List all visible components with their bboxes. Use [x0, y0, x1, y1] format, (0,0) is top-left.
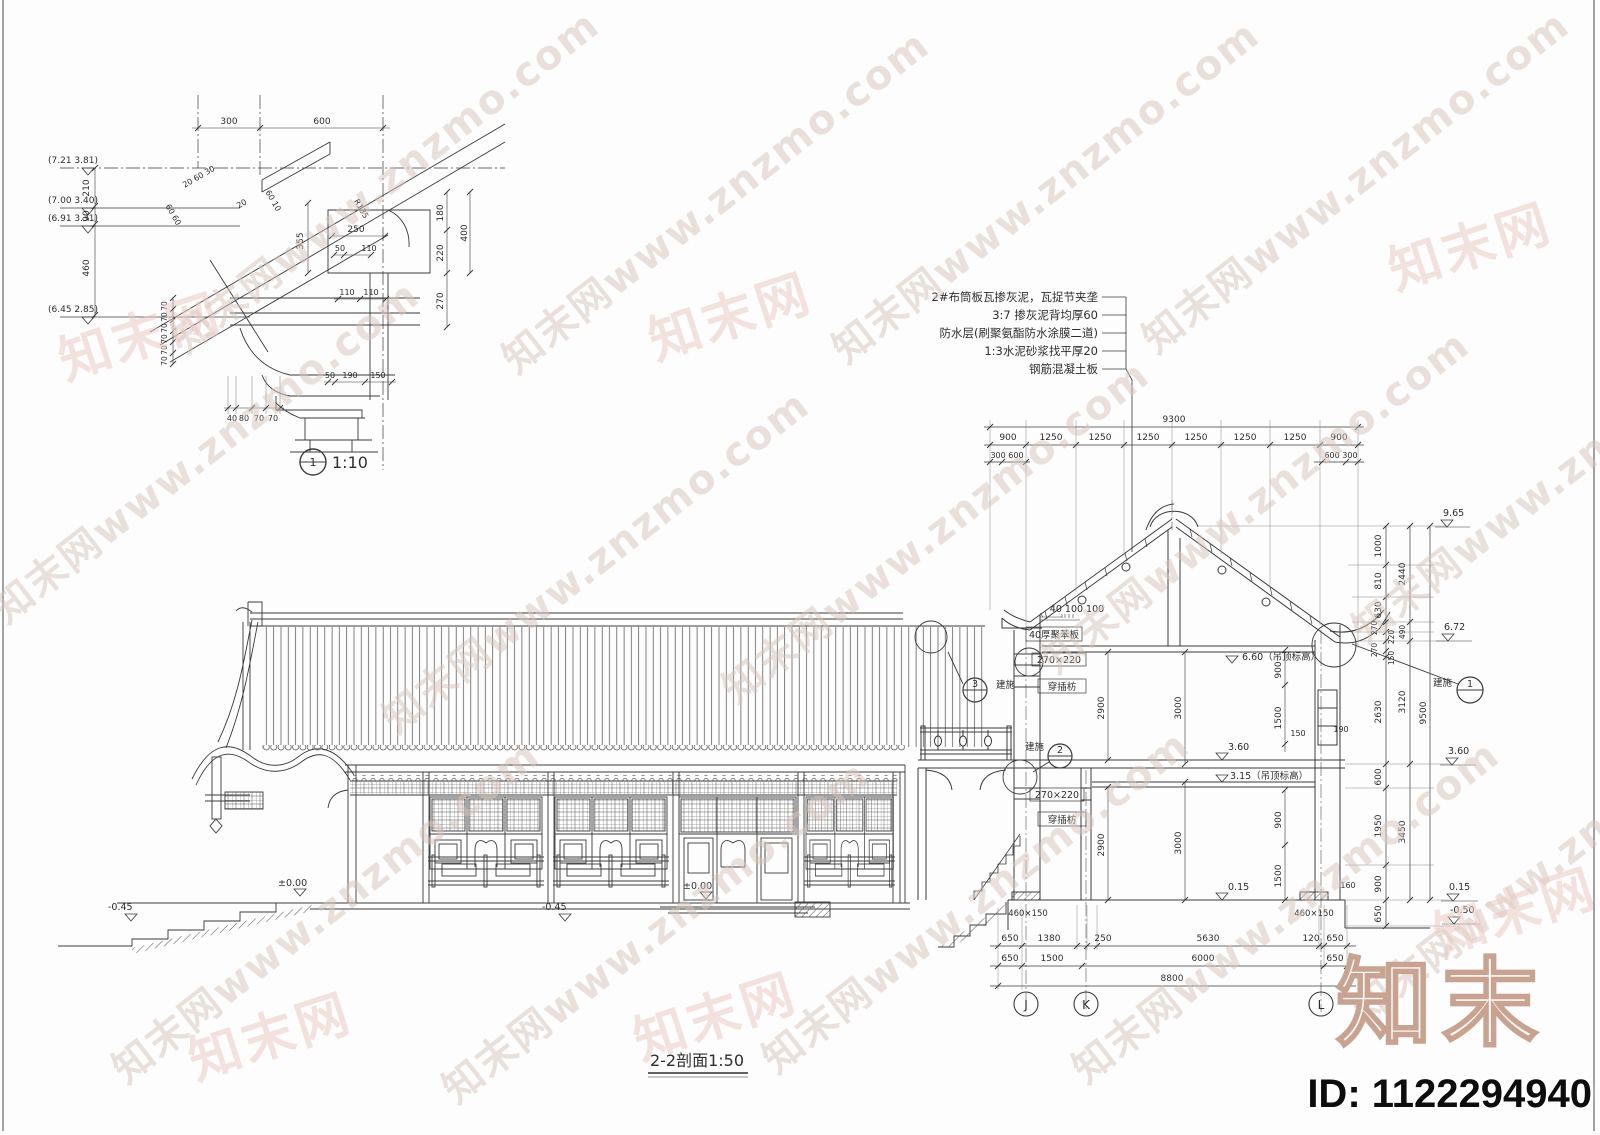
- ref-label: 建施: [1433, 677, 1453, 689]
- image-id-label: ID: 1122294940: [1307, 1072, 1592, 1117]
- dim-label: 70: [160, 345, 169, 355]
- dim-label: 5630: [1197, 934, 1220, 944]
- dim-label: 110: [361, 244, 376, 253]
- member-label: 穿插枋: [1048, 681, 1077, 693]
- level-label: (6.45 2.85): [48, 305, 98, 315]
- dim-label: 2900: [1097, 833, 1107, 856]
- member-label: 460×150: [1008, 909, 1048, 919]
- dim-label: 630: [1374, 601, 1384, 618]
- dim-label: 1250: [1234, 433, 1257, 443]
- dim-label: 150: [1290, 729, 1305, 738]
- grid-label: K: [1082, 998, 1091, 1012]
- znzmo-logo: 知末: [1336, 926, 1548, 1065]
- dim-label: 650: [1001, 934, 1018, 944]
- level-label: ±0.00: [278, 878, 307, 889]
- level-label: -0.50: [1450, 905, 1475, 916]
- dim-label: 3000: [1174, 696, 1184, 719]
- dim-label: 600: [1374, 768, 1384, 785]
- dim-label: 490: [1398, 625, 1407, 640]
- ref-number: 1: [1467, 679, 1473, 690]
- dim-label: 3120: [1398, 690, 1408, 713]
- ref-label: 建施: [996, 679, 1016, 691]
- left-building: [58, 602, 1006, 954]
- dim-label: 600 300: [1324, 451, 1357, 460]
- roof-construction-notes: 2#布筒板瓦掺灰泥，瓦捉节夹垄 3:7 掺灰泥背均厚60 防水层(刷聚氨酯防水涂…: [932, 290, 1132, 552]
- dim-label: 900: [1374, 875, 1384, 892]
- level-label: 3.60: [1448, 746, 1469, 757]
- dim-label: 60 60: [164, 203, 183, 227]
- grid-label: L: [1318, 998, 1325, 1012]
- level-label: (7.21 3.81): [48, 156, 98, 166]
- dim-label: 1250: [1185, 433, 1208, 443]
- dim-label: 1500: [1274, 864, 1284, 887]
- dim-label: 150: [370, 371, 385, 380]
- dim-label: 250: [1094, 934, 1111, 944]
- dim-label: 460: [82, 259, 92, 276]
- level-label: 9.65: [1443, 508, 1464, 519]
- cad-sheet: 知末网www.znzmo.com 知末网www.znzmo.com 知末网www…: [0, 0, 1600, 1131]
- dim-label: 80: [239, 414, 249, 423]
- dim-label: 250: [347, 225, 364, 235]
- dim-label: 8800: [1161, 974, 1184, 984]
- level-label: -0.45: [108, 902, 133, 913]
- note-leader-lines: [1102, 297, 1132, 552]
- dim-label: 6000: [1192, 954, 1215, 964]
- dim-label: 110: [363, 288, 378, 297]
- drawing-title: 2-2剖面1:50: [648, 1051, 748, 1077]
- dim-label: 270: [1370, 643, 1379, 658]
- note-line: 1:3水泥砂浆找平厚20: [984, 344, 1098, 358]
- detail-bubble-number: 1: [310, 456, 317, 469]
- dim-label: 70: [160, 356, 169, 366]
- dim-label: 1250: [1089, 433, 1112, 443]
- grid-label: J: [1023, 998, 1028, 1012]
- dim-label: 2900: [1097, 696, 1107, 719]
- dim-label: 50: [325, 371, 335, 380]
- note-line: 钢筋混凝土板: [1029, 362, 1098, 376]
- dim-label: 190: [1333, 725, 1348, 734]
- dim-label: 9300: [1163, 415, 1186, 425]
- member-label: 40厚聚苯板: [1029, 629, 1080, 641]
- dim-label: 600: [313, 117, 330, 127]
- dim-label: 1500: [1041, 954, 1064, 964]
- ref-number: 2: [1057, 745, 1063, 756]
- detail-scale-label: 1:10: [332, 453, 368, 472]
- dim-label: 70: [268, 414, 278, 423]
- member-label: 270×220: [1035, 790, 1079, 801]
- dim-label: 355: [296, 232, 306, 249]
- dim-label: 1250: [1284, 433, 1307, 443]
- door-bay: [117, 797, 815, 913]
- dim-label: 9500: [1419, 701, 1429, 724]
- grid-bubbles: J K L: [1014, 992, 1333, 1016]
- dim-label: 900: [1330, 433, 1347, 443]
- dim-label: 3000: [1174, 831, 1184, 854]
- note-line: 防水层(刷聚氨酯防水涂膜二道): [940, 326, 1098, 340]
- dim-label: 650: [1001, 954, 1018, 964]
- dim-label: 1250: [1137, 433, 1160, 443]
- right-building-section: [58, 500, 1430, 1012]
- ref-number: 3: [972, 679, 978, 690]
- dim-label: 900: [1274, 661, 1284, 678]
- dim-label: 270: [436, 292, 446, 309]
- dim-label: 120: [1302, 934, 1319, 944]
- dim-label: 1250: [1040, 433, 1063, 443]
- detail-1-eave: [60, 95, 505, 475]
- level-label: 0.15: [1228, 882, 1249, 893]
- dimension-lines: [984, 420, 1456, 990]
- dim-label: 2440: [1398, 562, 1408, 585]
- detail-1-texts: 300 600 (7.21 3.81) (7.00 3.40) (6.91 3.…: [48, 117, 470, 472]
- dim-label: 150: [1387, 651, 1396, 666]
- section-title: 2-2剖面1:50: [650, 1051, 744, 1070]
- dim-label: R135: [352, 197, 370, 220]
- level-label: 6.60（吊顶标高）: [1242, 651, 1320, 663]
- dim-label: 210: [82, 179, 92, 196]
- dim-label: 1380: [1038, 934, 1061, 944]
- dim-label: 70: [160, 312, 169, 322]
- dim-label: 270: [1370, 621, 1379, 636]
- dim-label: 220: [1387, 630, 1396, 645]
- dim-label: 110: [339, 288, 354, 297]
- dimension-texts: 9300 900 1250 1250 1250 1250 1250 1250 9…: [990, 415, 1429, 984]
- dim-label: 300: [220, 117, 237, 127]
- level-label: 3.60: [1228, 742, 1249, 753]
- dim-label: 3450: [1398, 820, 1408, 843]
- dim-label: 300 600: [990, 451, 1023, 460]
- dim-label: 900: [999, 433, 1016, 443]
- dim-label: 650: [1374, 905, 1384, 922]
- dim-label: 180: [436, 204, 446, 221]
- dim-label: 810: [1374, 572, 1384, 589]
- dim-label: 40 100 100: [1050, 604, 1104, 615]
- note-line: 3:7 掺灰泥背均厚60: [992, 308, 1098, 322]
- dim-label: 900: [1274, 811, 1284, 828]
- dim-label: 220: [436, 244, 446, 261]
- member-label: 270×220: [1037, 655, 1081, 666]
- ref-label: 建施: [1025, 741, 1045, 753]
- level-label: ±0.00: [683, 881, 712, 892]
- dim-label: 160: [1340, 881, 1355, 890]
- dim-label: 190: [342, 371, 357, 380]
- dim-label: 90: [82, 210, 92, 222]
- level-label: 3.15（吊顶标高）: [1230, 770, 1308, 782]
- dim-label: 70: [160, 301, 169, 311]
- dim-label: 400: [460, 224, 470, 241]
- dim-label: 50: [335, 244, 345, 253]
- dim-label: 1000: [1374, 534, 1384, 557]
- level-label: 0.15: [1449, 882, 1470, 893]
- level-label: 6.72: [1444, 622, 1465, 633]
- dim-label: 1500: [1274, 706, 1284, 729]
- dim-label: 70: [160, 323, 169, 333]
- dim-label: 2630: [1374, 700, 1384, 723]
- dim-label: 1950: [1374, 814, 1384, 837]
- note-line: 2#布筒板瓦掺灰泥，瓦捉节夹垄: [932, 290, 1098, 304]
- dim-label: 60 10: [264, 189, 283, 213]
- member-label: 460×150: [1294, 909, 1334, 919]
- dim-label: 40: [227, 414, 237, 423]
- member-label: 穿插枋: [1048, 814, 1077, 826]
- level-label: -0.45: [542, 902, 567, 913]
- dim-label: 70: [254, 414, 264, 423]
- dim-label: 70: [160, 334, 169, 344]
